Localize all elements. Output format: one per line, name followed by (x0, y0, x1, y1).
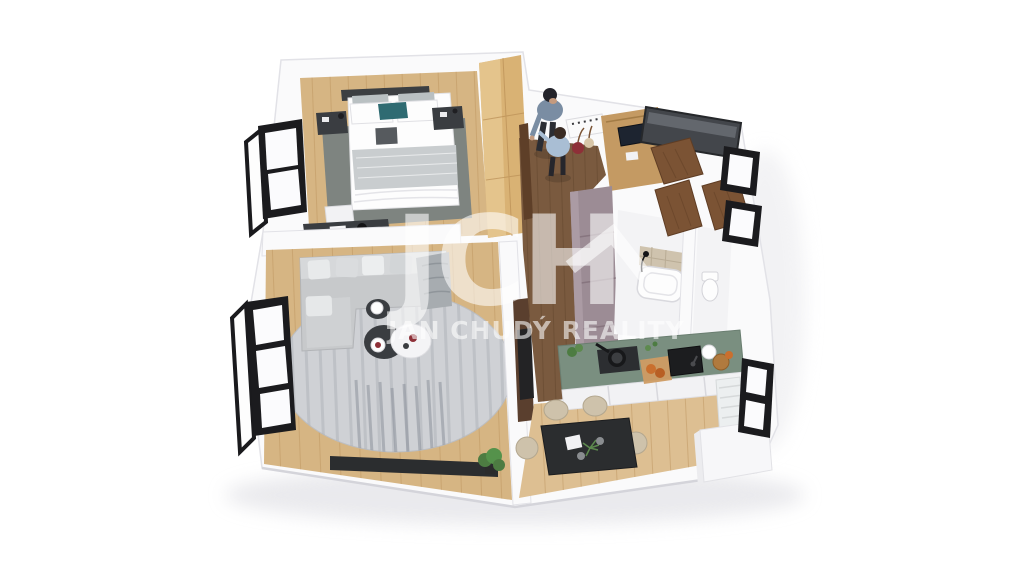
desk-nook-paper (626, 151, 639, 160)
floorplan-render: JCH JAN CHUDÝ REALITY (0, 0, 1024, 576)
bread-item-1 (646, 364, 656, 374)
nightstand-left (316, 111, 348, 135)
side-table (366, 299, 390, 319)
red-bag (572, 142, 584, 154)
sofa-pillow-1 (307, 259, 330, 279)
bed-pillow-teal (378, 102, 408, 120)
window-right-middle (722, 200, 762, 247)
adult-face (549, 98, 557, 104)
sofa-throw-blanket (416, 252, 452, 310)
sofa-pillow-4 (389, 254, 412, 274)
bread-board (640, 356, 672, 384)
living-room (264, 240, 512, 505)
bread-item-2 (655, 368, 665, 378)
table-plate-1 (577, 452, 585, 460)
coffee-plate-red-item (375, 342, 381, 348)
side-table-plate (371, 302, 383, 314)
nightstand-right (432, 106, 464, 130)
dining-chair-left (516, 437, 538, 459)
sofa-pillow-3 (362, 256, 385, 276)
bed-cushion-patterned (375, 126, 399, 145)
white-kettle (702, 345, 716, 359)
coffee-table-white (391, 324, 431, 358)
nightstand-lamp (338, 113, 344, 119)
adult-hand (530, 136, 535, 141)
sofa-pillow-2 (335, 257, 358, 277)
herb-sprig-2 (653, 342, 658, 347)
window-living-left (232, 296, 296, 452)
beige-bag (584, 138, 594, 148)
coffee-table-red-plate (409, 334, 417, 342)
window-kitchen-right (738, 358, 774, 438)
dining-chair-top-left (544, 400, 568, 420)
child-leg-left (551, 157, 553, 176)
sofa-pillow-chaise (306, 296, 333, 317)
dining-chair-top-right (583, 396, 607, 416)
garnish-leaf (725, 351, 733, 359)
kitchen-sink (668, 346, 703, 376)
window-right-top (720, 146, 760, 196)
child-head (554, 127, 566, 139)
herb-sprig-1 (645, 345, 651, 351)
tv-screen (517, 328, 534, 400)
toilet (702, 272, 718, 301)
cooktop (596, 344, 640, 374)
table-plate-2 (596, 437, 604, 445)
apartment-3d-plan (0, 0, 1024, 576)
